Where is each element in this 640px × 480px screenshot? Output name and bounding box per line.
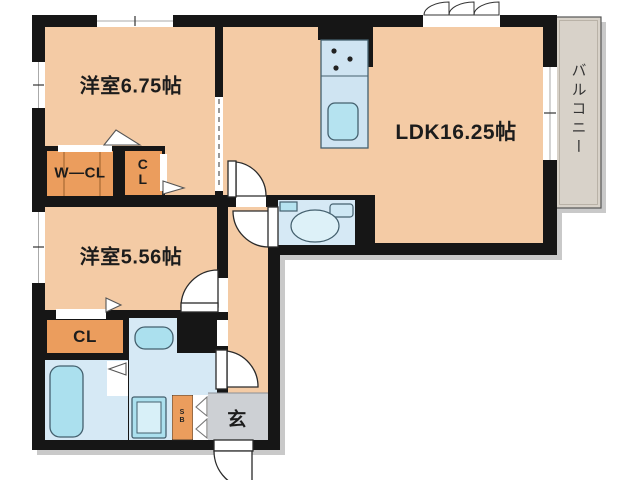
kitchen-counter [318,27,373,148]
window-ldk-top [423,15,500,27]
wcl-door-opening [58,145,112,152]
entrance-label: 玄 [227,405,247,432]
awning-windows [424,2,499,15]
shoebox-label: SB [179,409,186,425]
wcl-label: W—CL [54,165,105,182]
ldk-floor-lower [375,195,543,243]
ldk-label: LDK16.25帖 [395,116,516,146]
floor-plan: 洋室6.75帖 LDK16.25帖 洋室5.56帖 W—CL CL CL 玄 S… [0,0,640,480]
western1-label: 洋室6.75帖 [80,70,182,99]
cl-lower-door-opening [56,309,106,319]
toilet-door-leaf [268,207,278,247]
entrance-door-leaf [214,440,253,451]
washroom-door-leaf [216,350,227,389]
entrance-door-arc [214,451,252,480]
ldk-floor [223,27,543,195]
kitchen-sink [328,103,358,140]
ldk-door-opening [236,196,266,207]
bathtub [50,366,83,437]
western2-label: 洋室5.56帖 [80,241,182,270]
cl-lower-label: CL [73,327,97,347]
western2-door-leaf [181,303,218,312]
ldk-door-leaf [228,161,236,197]
balcony-label: バルコニー [568,63,589,158]
cl-upper-label: CL [136,157,150,187]
toilet-bowl [291,210,339,242]
washbasin [135,327,173,349]
washroom-floor [129,353,217,395]
toilet-paper-holder [280,202,297,211]
washroom-door-opening [217,320,228,346]
